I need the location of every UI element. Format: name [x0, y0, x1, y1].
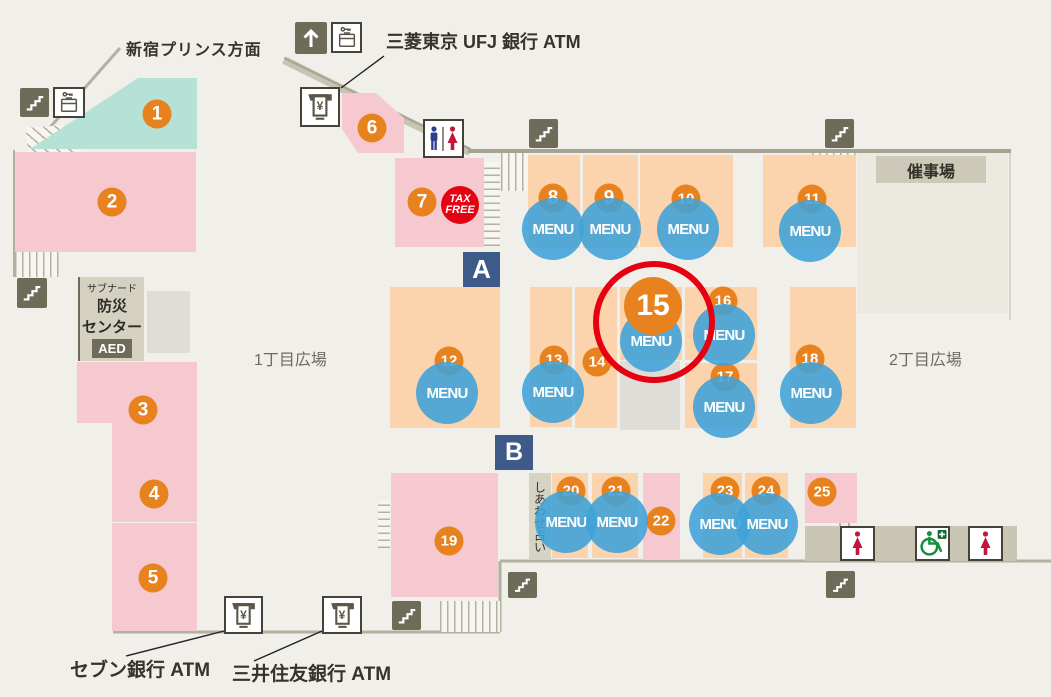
- menu-button-21[interactable]: MENU: [586, 491, 648, 553]
- event-hall-label: 催事場: [876, 156, 986, 183]
- unit-number-5[interactable]: 5: [139, 564, 168, 593]
- menu-button-18[interactable]: MENU: [780, 362, 842, 424]
- atm-icon-ufj: ¥: [300, 87, 340, 127]
- disaster-center-label: サブナード 防災 センター AED: [78, 277, 144, 361]
- stairs-icon: [508, 572, 537, 598]
- menu-button-8[interactable]: MENU: [522, 198, 584, 260]
- unit-number-1[interactable]: 1: [143, 100, 172, 129]
- stairs-icon: [825, 119, 854, 148]
- zone-marker-b: B: [495, 435, 533, 470]
- smbc-atm-label: 三井住友銀行 ATM: [232, 659, 391, 686]
- unit-number-25[interactable]: 25: [808, 478, 837, 507]
- stairs-hatch: [501, 153, 528, 191]
- yen-symbol: ¥: [317, 99, 324, 113]
- woman-figure: [446, 126, 459, 152]
- unit-number-3[interactable]: 3: [129, 396, 158, 425]
- plaza-1-label: 1丁目広場: [254, 346, 327, 370]
- unit-number-22[interactable]: 22: [647, 507, 676, 536]
- floor-map: 新宿プリンス方面 三菱東京 UFJ 銀行 ATM セブン銀行 ATM 三井住友銀…: [0, 0, 1051, 697]
- divider: [442, 127, 444, 151]
- womens-restroom-icon: [840, 526, 875, 561]
- disaster-center-line2: 防災: [97, 295, 127, 316]
- menu-button-10[interactable]: MENU: [657, 198, 719, 260]
- menu-button-11[interactable]: MENU: [779, 200, 841, 262]
- plaza-2-label: 2丁目広場: [889, 346, 962, 370]
- menu-button-12[interactable]: MENU: [416, 362, 478, 424]
- disaster-center-line3: センター: [82, 316, 142, 337]
- stairs-hatch: [440, 601, 500, 632]
- coin-locker-icon: [331, 22, 362, 53]
- stairs-hatch: [484, 162, 500, 246]
- unit-number-6[interactable]: 6: [358, 114, 387, 143]
- yen-symbol: ¥: [240, 608, 247, 622]
- ufj-atm-label: 三菱東京 UFJ 銀行 ATM: [386, 28, 581, 54]
- coin-locker-icon: [53, 87, 85, 118]
- tax-free-badge: TAX FREE: [441, 186, 479, 224]
- atm-icon-seven-bank: ¥: [224, 596, 263, 634]
- stairs-icon: [826, 571, 855, 598]
- yen-symbol: ¥: [339, 608, 346, 622]
- unit-number-4[interactable]: 4: [140, 480, 169, 509]
- stairs-hatch: [15, 251, 59, 277]
- unit-number-7[interactable]: 7: [408, 188, 437, 217]
- menu-button-13[interactable]: MENU: [522, 361, 584, 423]
- man-figure: [428, 126, 440, 152]
- prince-direction-label: 新宿プリンス方面: [126, 36, 262, 60]
- menu-button-24[interactable]: MENU: [736, 493, 798, 555]
- disaster-center-line1: サブナード: [87, 280, 137, 295]
- tax-free-line2: FREE: [445, 205, 474, 216]
- menu-button-17[interactable]: MENU: [693, 376, 755, 438]
- womens-restroom-icon: [968, 526, 1003, 561]
- highlight-ring: [593, 261, 715, 383]
- stairs-icon: [20, 88, 49, 117]
- menu-button-9[interactable]: MENU: [579, 198, 641, 260]
- stairs-icon: [17, 278, 47, 308]
- atm-icon-smbc: ¥: [322, 596, 362, 634]
- service-area: [147, 291, 190, 353]
- aed-badge: AED: [92, 339, 132, 358]
- restroom-icon: [423, 119, 464, 158]
- seven-bank-atm-label: セブン銀行 ATM: [70, 655, 210, 682]
- stairs-hatch: [378, 501, 390, 548]
- unit-number-2[interactable]: 2: [98, 188, 127, 217]
- stairs-icon: [392, 601, 421, 630]
- zone-marker-a: A: [463, 252, 500, 287]
- accessible-restroom-icon: [915, 526, 950, 561]
- up-arrow-icon: [295, 22, 327, 54]
- unit-number-19[interactable]: 19: [435, 527, 464, 556]
- stairs-icon: [529, 119, 558, 148]
